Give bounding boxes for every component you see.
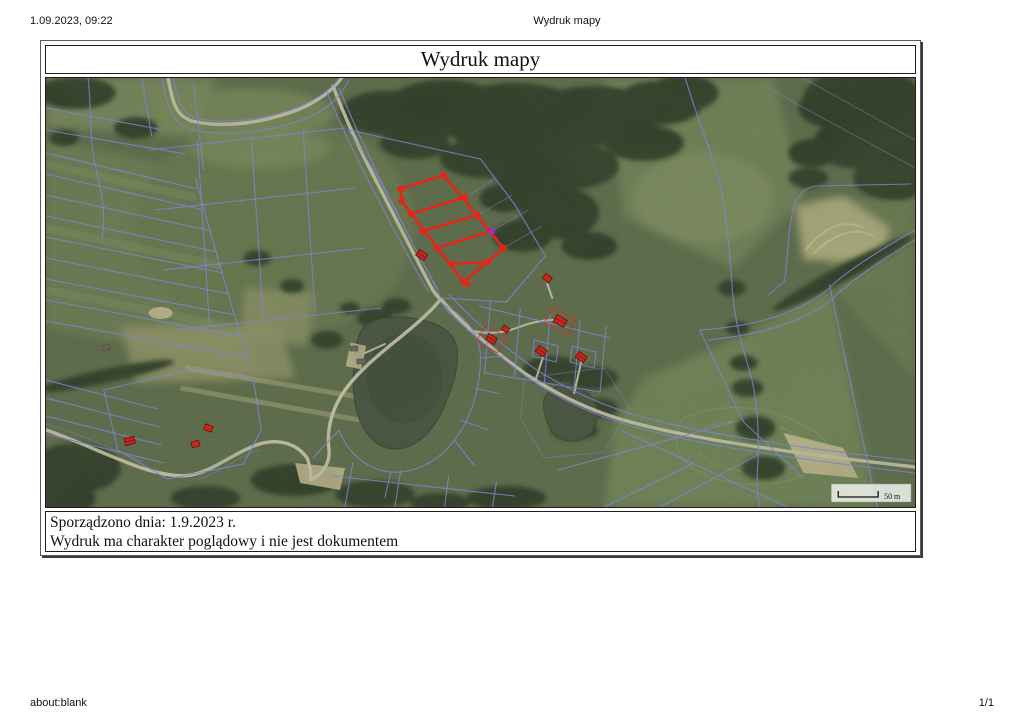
scale-bar-label: 50 m — [884, 492, 901, 501]
magenta-point-marker — [488, 228, 494, 234]
footnote-line-1: Sporządzono dnia: 1.9.2023 r. — [50, 513, 911, 532]
print-header-title: Wydruk mapy — [55, 15, 1024, 27]
map-footnote: Sporządzono dnia: 1.9.2023 r. Wydruk ma … — [45, 511, 916, 552]
map-title: Wydruk mapy — [45, 45, 916, 74]
terrain-grain — [46, 78, 915, 507]
print-footer-source: about:blank — [30, 697, 87, 709]
scale-bar: 50 m — [831, 484, 911, 502]
footnote-line-2: Wydruk ma charakter poglądowy i nie jest… — [50, 532, 911, 551]
print-footer-page-number: 1/1 — [979, 697, 994, 709]
print-preview-page: 1.09.2023, 09:22 Wydruk mapy Wydruk mapy — [0, 0, 1024, 724]
aerial-map-image: 50 m — [46, 78, 915, 507]
map-sheet-frame: Wydruk mapy — [40, 40, 921, 556]
map-viewport: 50 m — [45, 77, 916, 508]
